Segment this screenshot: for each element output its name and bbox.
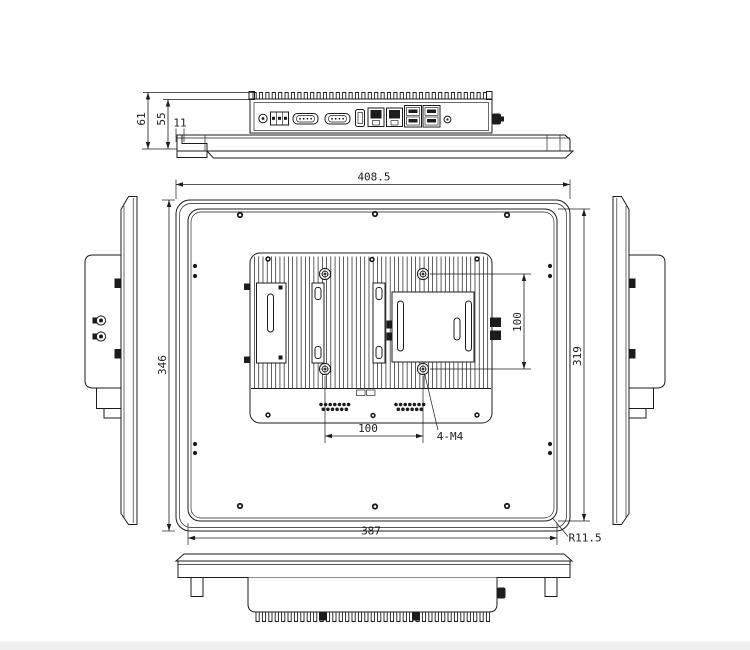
antenna-nub: [490, 331, 501, 341]
com-port-2: [325, 114, 350, 125]
dim-corner-radius: R11.5: [569, 532, 602, 545]
rear-box: [629, 255, 665, 388]
clamp-tab: [115, 349, 121, 359]
dim-vesa-horizontal: 100: [358, 422, 378, 435]
lan-port-1: [368, 108, 384, 127]
lan-port-2: [387, 108, 403, 127]
heatsink-fins-bottom: [256, 612, 490, 622]
bezel-profile: [178, 561, 570, 578]
mount-plate-right: [392, 292, 474, 362]
antenna-connector: [492, 114, 504, 125]
io-ports: [259, 106, 504, 128]
terminal-block: [271, 112, 289, 125]
dim-total-depth: 61: [135, 112, 148, 125]
mount-slot: [268, 294, 274, 332]
side-nub: [244, 357, 251, 364]
antenna-nub: [490, 318, 501, 328]
bezel-profile: [121, 197, 137, 525]
connector-nub: [387, 333, 393, 341]
top-profile-view: [177, 92, 573, 159]
front-bezel-profile: [177, 135, 573, 158]
glass-layer: [176, 554, 572, 561]
audio-jack: [444, 116, 451, 123]
connector-nub: [387, 321, 393, 329]
usb-stack-2: [423, 106, 440, 128]
heatsink-fins-top: [253, 93, 487, 100]
usb-stack-1: [405, 106, 422, 128]
rear-box: [248, 578, 497, 613]
side-wall-tab: [545, 578, 557, 597]
dim-overall-height: 346: [156, 355, 169, 375]
fin-end-post: [487, 92, 493, 100]
footer-band: [0, 642, 750, 650]
rear-box-foot: [629, 409, 646, 419]
dim-chassis-depth: 55: [155, 112, 168, 125]
left-profile-view: [85, 197, 137, 525]
rear-box-foot: [104, 409, 121, 419]
dim-bezel-lip: 11: [173, 117, 186, 130]
rear-box-step: [97, 388, 122, 409]
right-profile-view: [613, 197, 665, 525]
bezel-profile: [613, 197, 629, 525]
antenna-connector: [497, 588, 506, 599]
side-nub: [244, 284, 251, 291]
power-jack: [259, 114, 267, 122]
dim-vesa-vertical: 100: [511, 312, 524, 332]
clamp-tab: [115, 279, 121, 289]
dim-rear-cover-height: 319: [571, 346, 584, 366]
clamp-tab: [630, 279, 636, 289]
dim-rear-cover-width: 387: [361, 525, 381, 538]
drawing-svg: 408.5 346 319 100 100 4-M4 387 R11.5 61 …: [0, 0, 750, 650]
glass-layer: [207, 151, 573, 158]
rear-box-step: [629, 388, 654, 409]
dim-overall-width: 408.5: [357, 171, 390, 184]
side-wall-tab: [191, 578, 203, 597]
bezel-lip-step: [177, 135, 207, 158]
bottom-profile-view: [176, 554, 572, 622]
com-port-1: [293, 114, 318, 125]
hdmi-port: [356, 110, 365, 127]
technical-drawing-canvas: 408.5 346 319 100 100 4-M4 387 R11.5 61 …: [0, 0, 750, 650]
clamp-tab: [630, 349, 636, 359]
rear-view: [176, 200, 570, 531]
dim-vesa-holes: 4-M4: [437, 430, 464, 443]
heatsink-module: [244, 253, 501, 423]
